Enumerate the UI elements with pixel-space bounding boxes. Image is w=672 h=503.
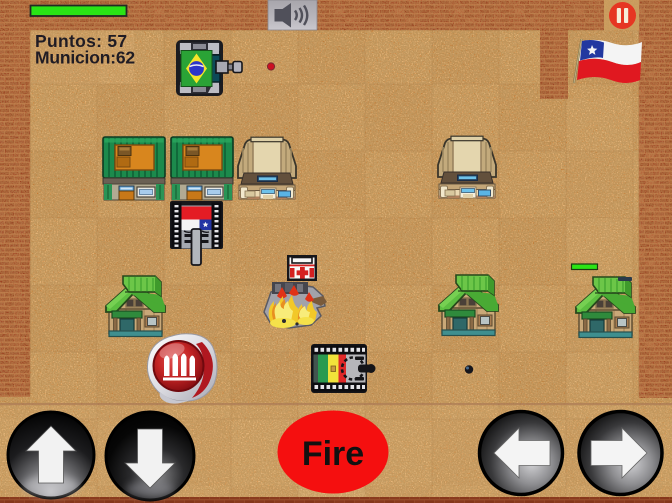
svg-text:Municion:62: Municion:62 [35, 48, 135, 68]
svg-text:Fire: Fire [302, 435, 364, 473]
